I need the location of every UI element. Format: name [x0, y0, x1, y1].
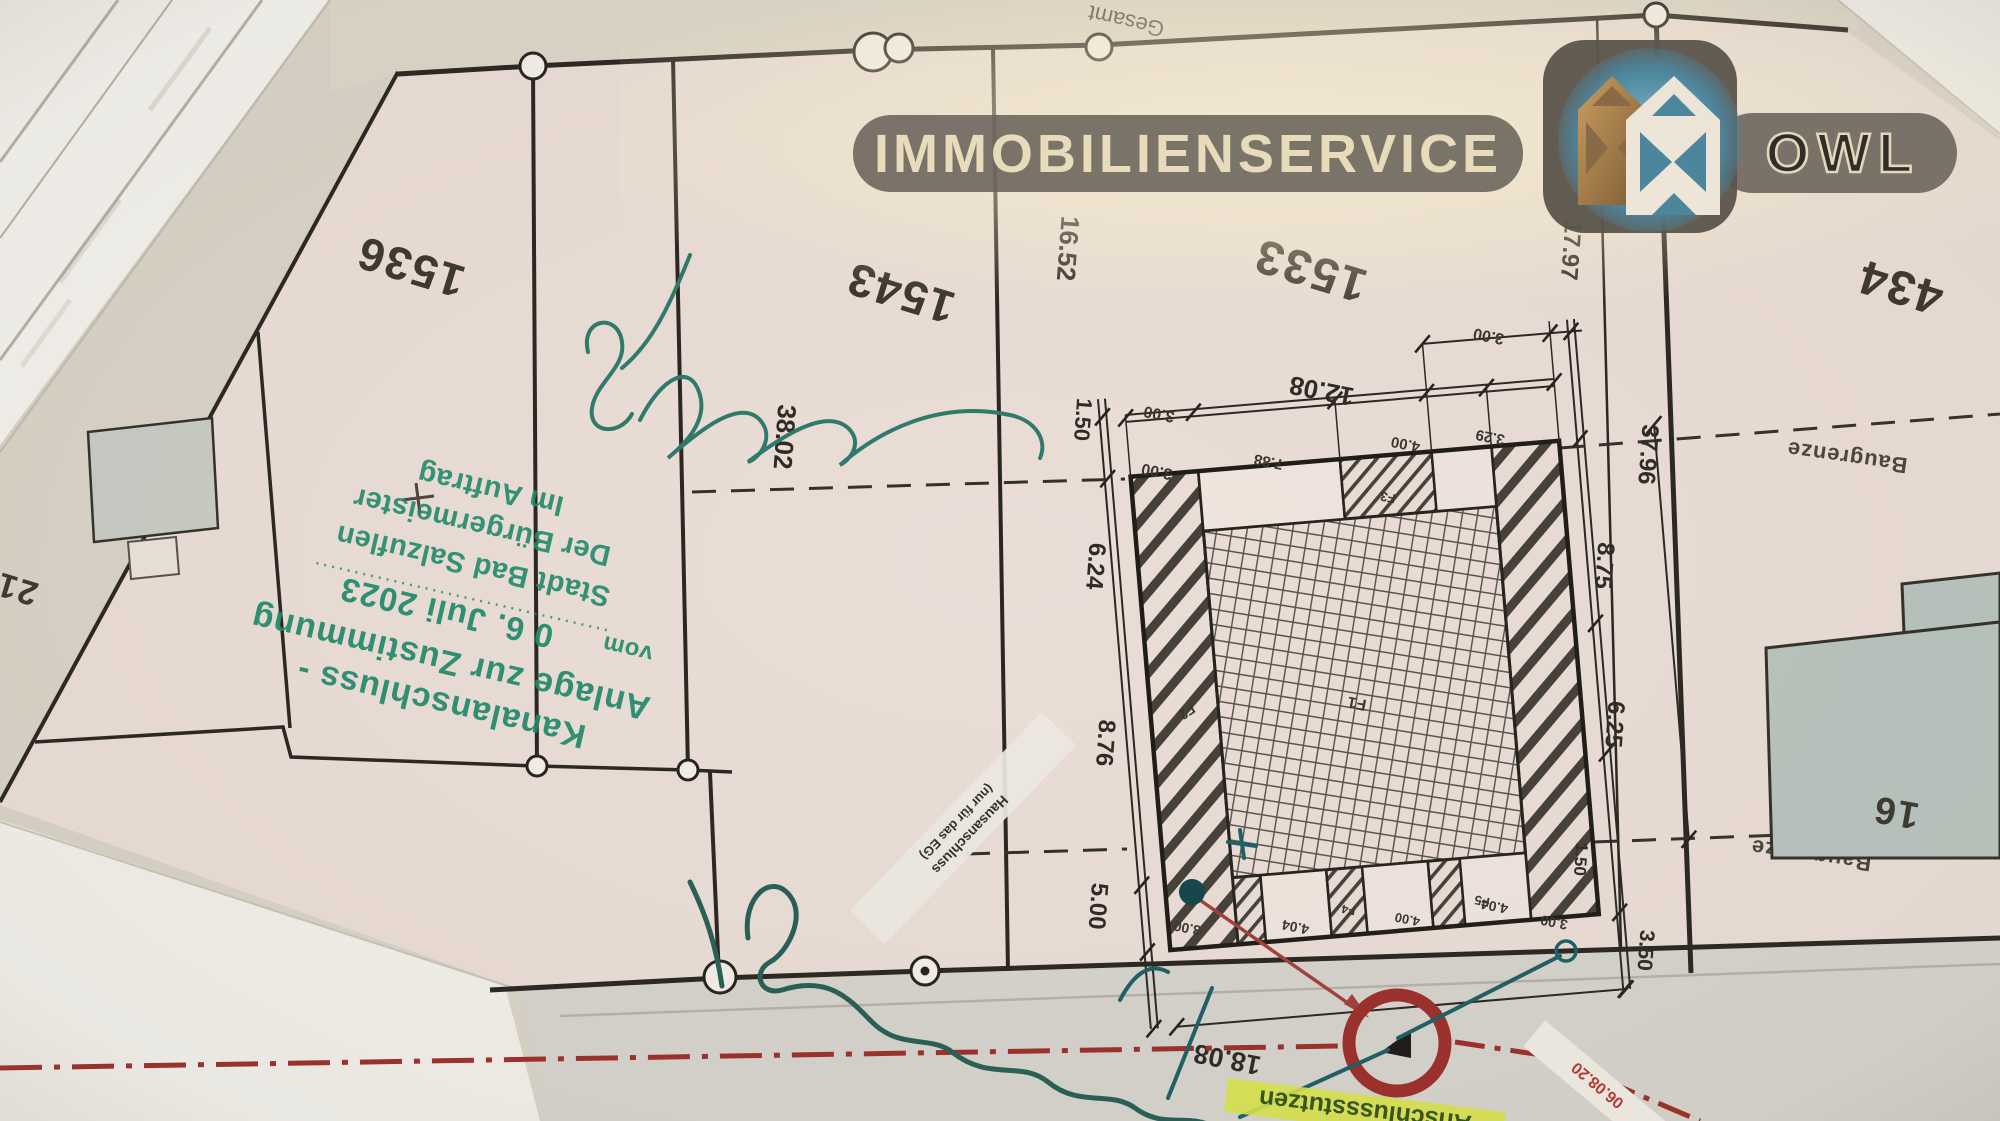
site-plan-photo: Baugrenze Baugrenze 16	[0, 0, 2000, 1121]
photo-vignette	[0, 0, 2000, 1121]
lageplan-svg: Baugrenze Baugrenze 16	[0, 0, 2000, 1121]
